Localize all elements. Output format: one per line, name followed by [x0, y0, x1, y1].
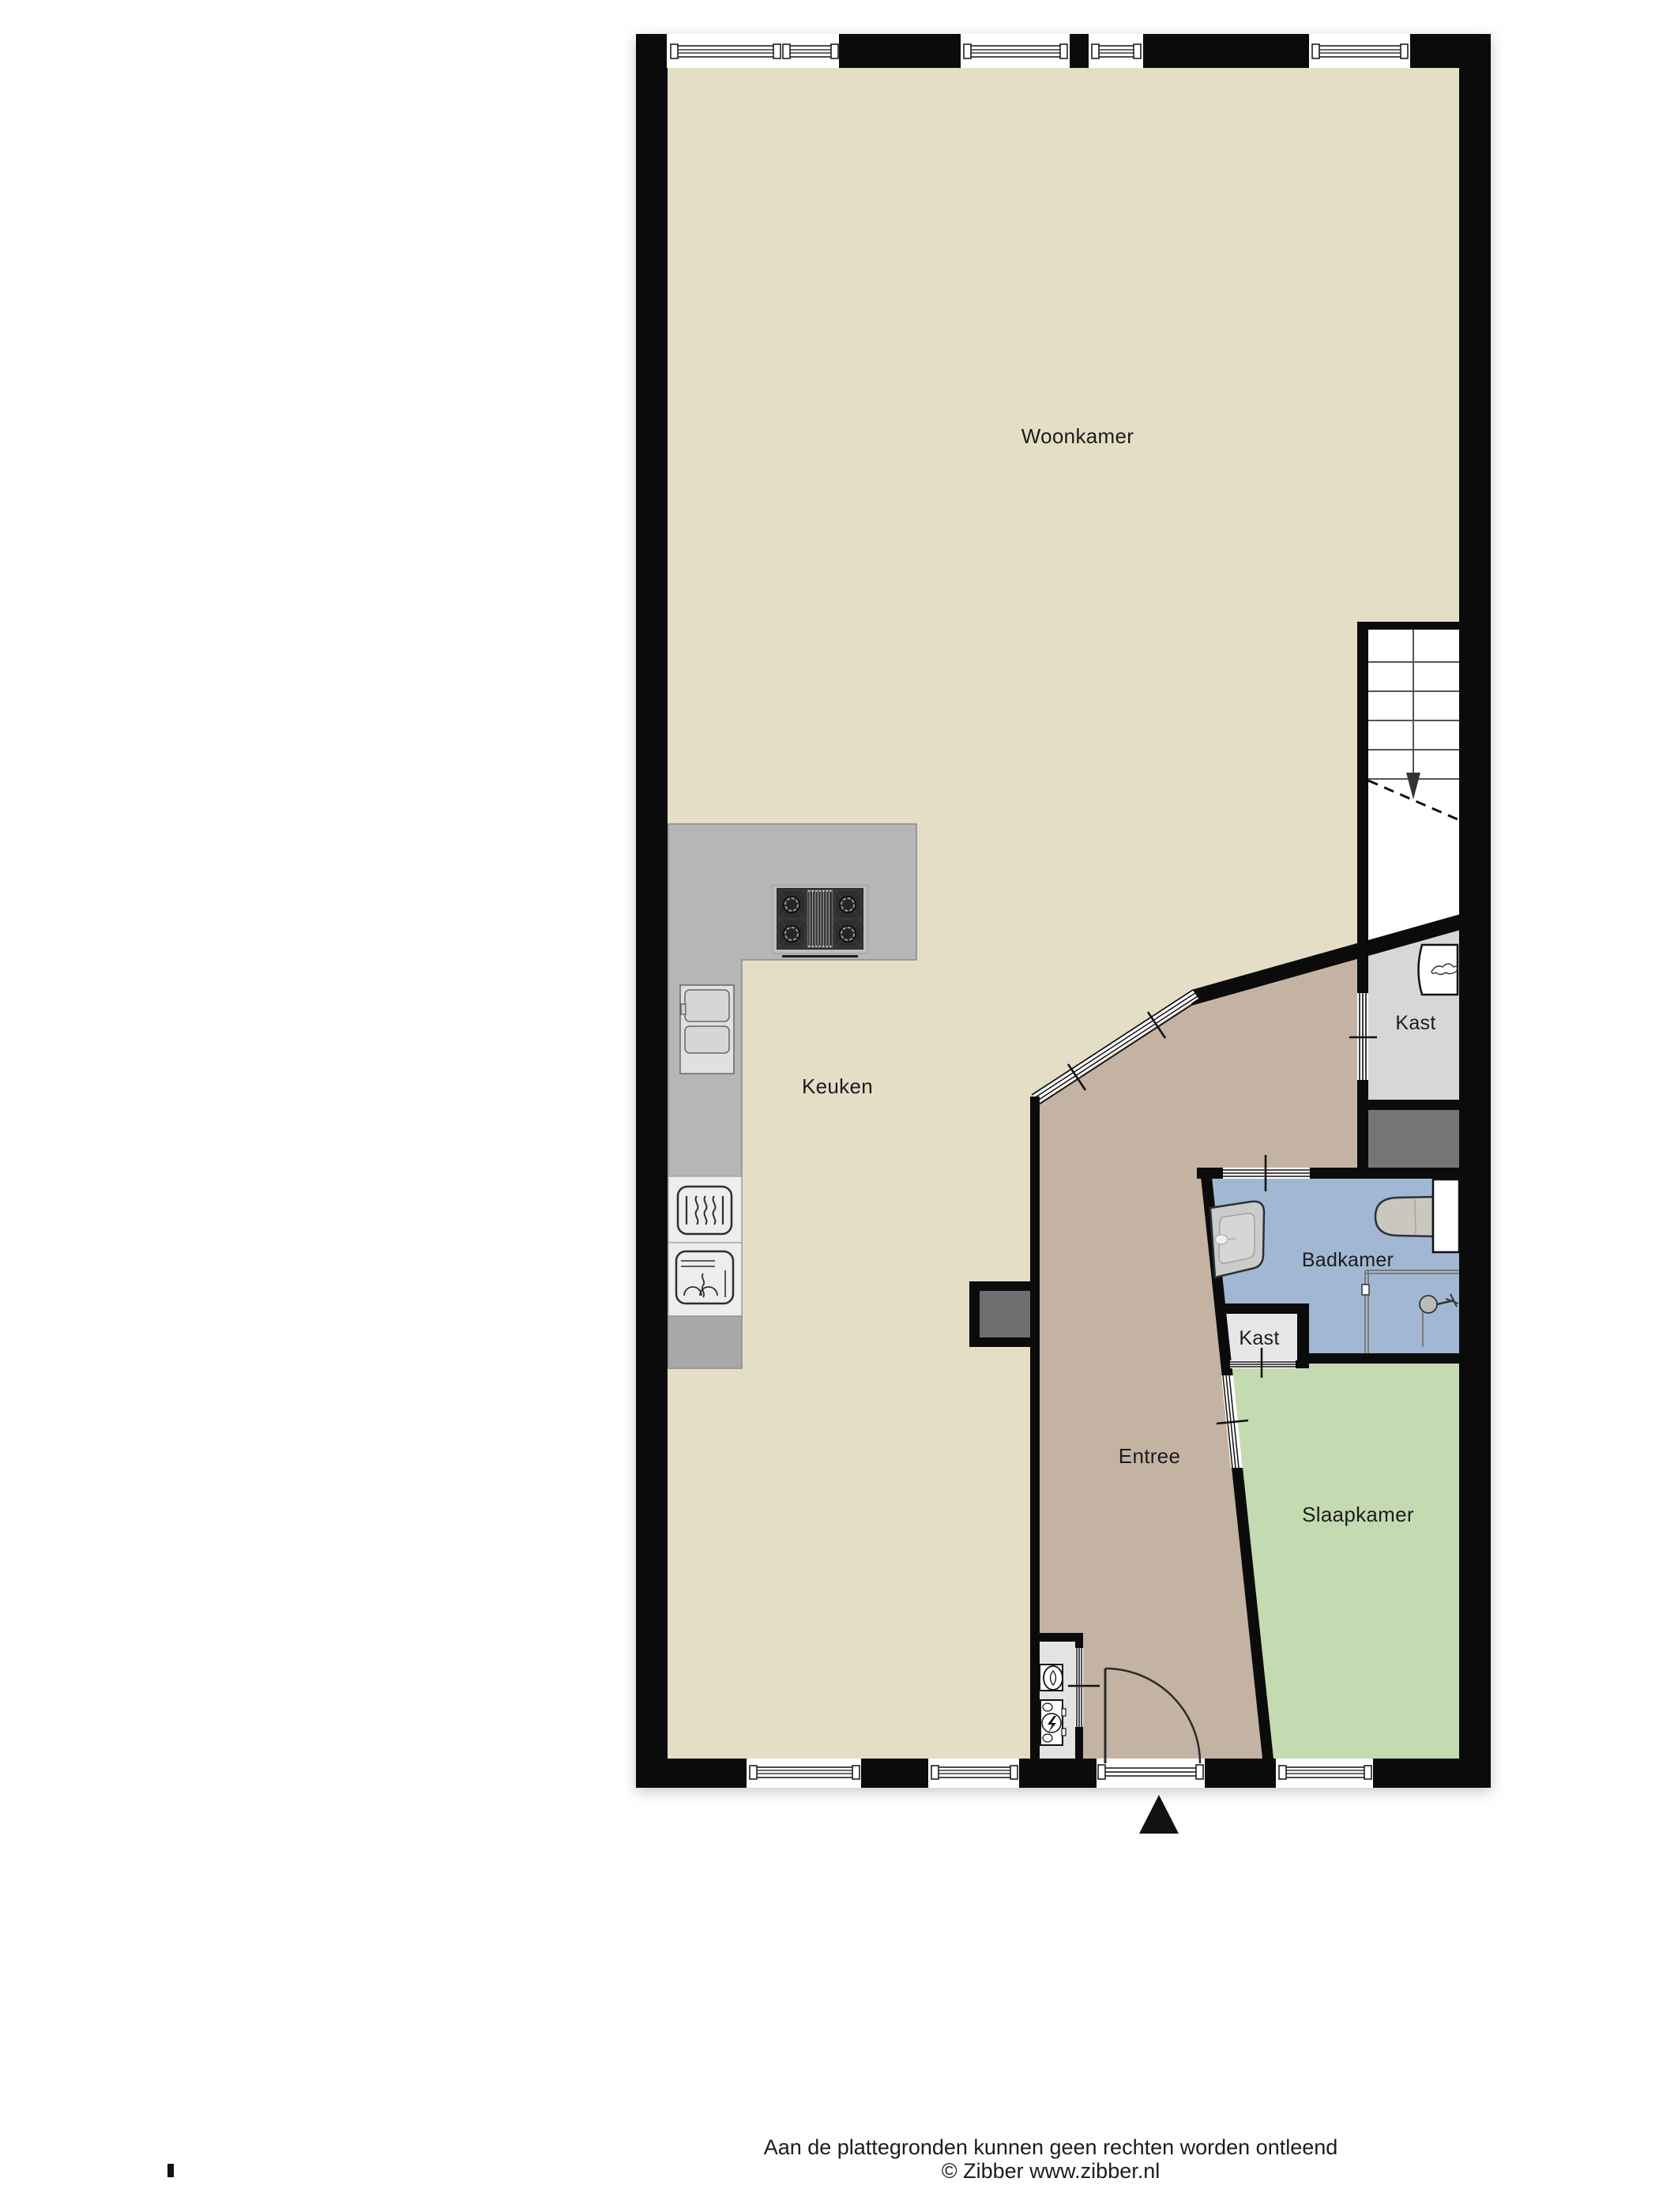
svg-text:Slaapkamer: Slaapkamer [1302, 1503, 1414, 1526]
svg-text:Keuken: Keuken [802, 1074, 873, 1098]
svg-text:Woonkamer: Woonkamer [1021, 424, 1134, 448]
svg-text:Badkamer: Badkamer [1302, 1249, 1394, 1271]
svg-text:Kast: Kast [1395, 1012, 1435, 1034]
svg-text:Aan de plattegronden kunnen ge: Aan de plattegronden kunnen geen rechten… [764, 2135, 1338, 2159]
svg-text:© Zibber www.zibber.nl: © Zibber www.zibber.nl [942, 2159, 1161, 2183]
svg-text:Kast: Kast [1239, 1327, 1279, 1349]
svg-text:Entree: Entree [1119, 1444, 1180, 1468]
